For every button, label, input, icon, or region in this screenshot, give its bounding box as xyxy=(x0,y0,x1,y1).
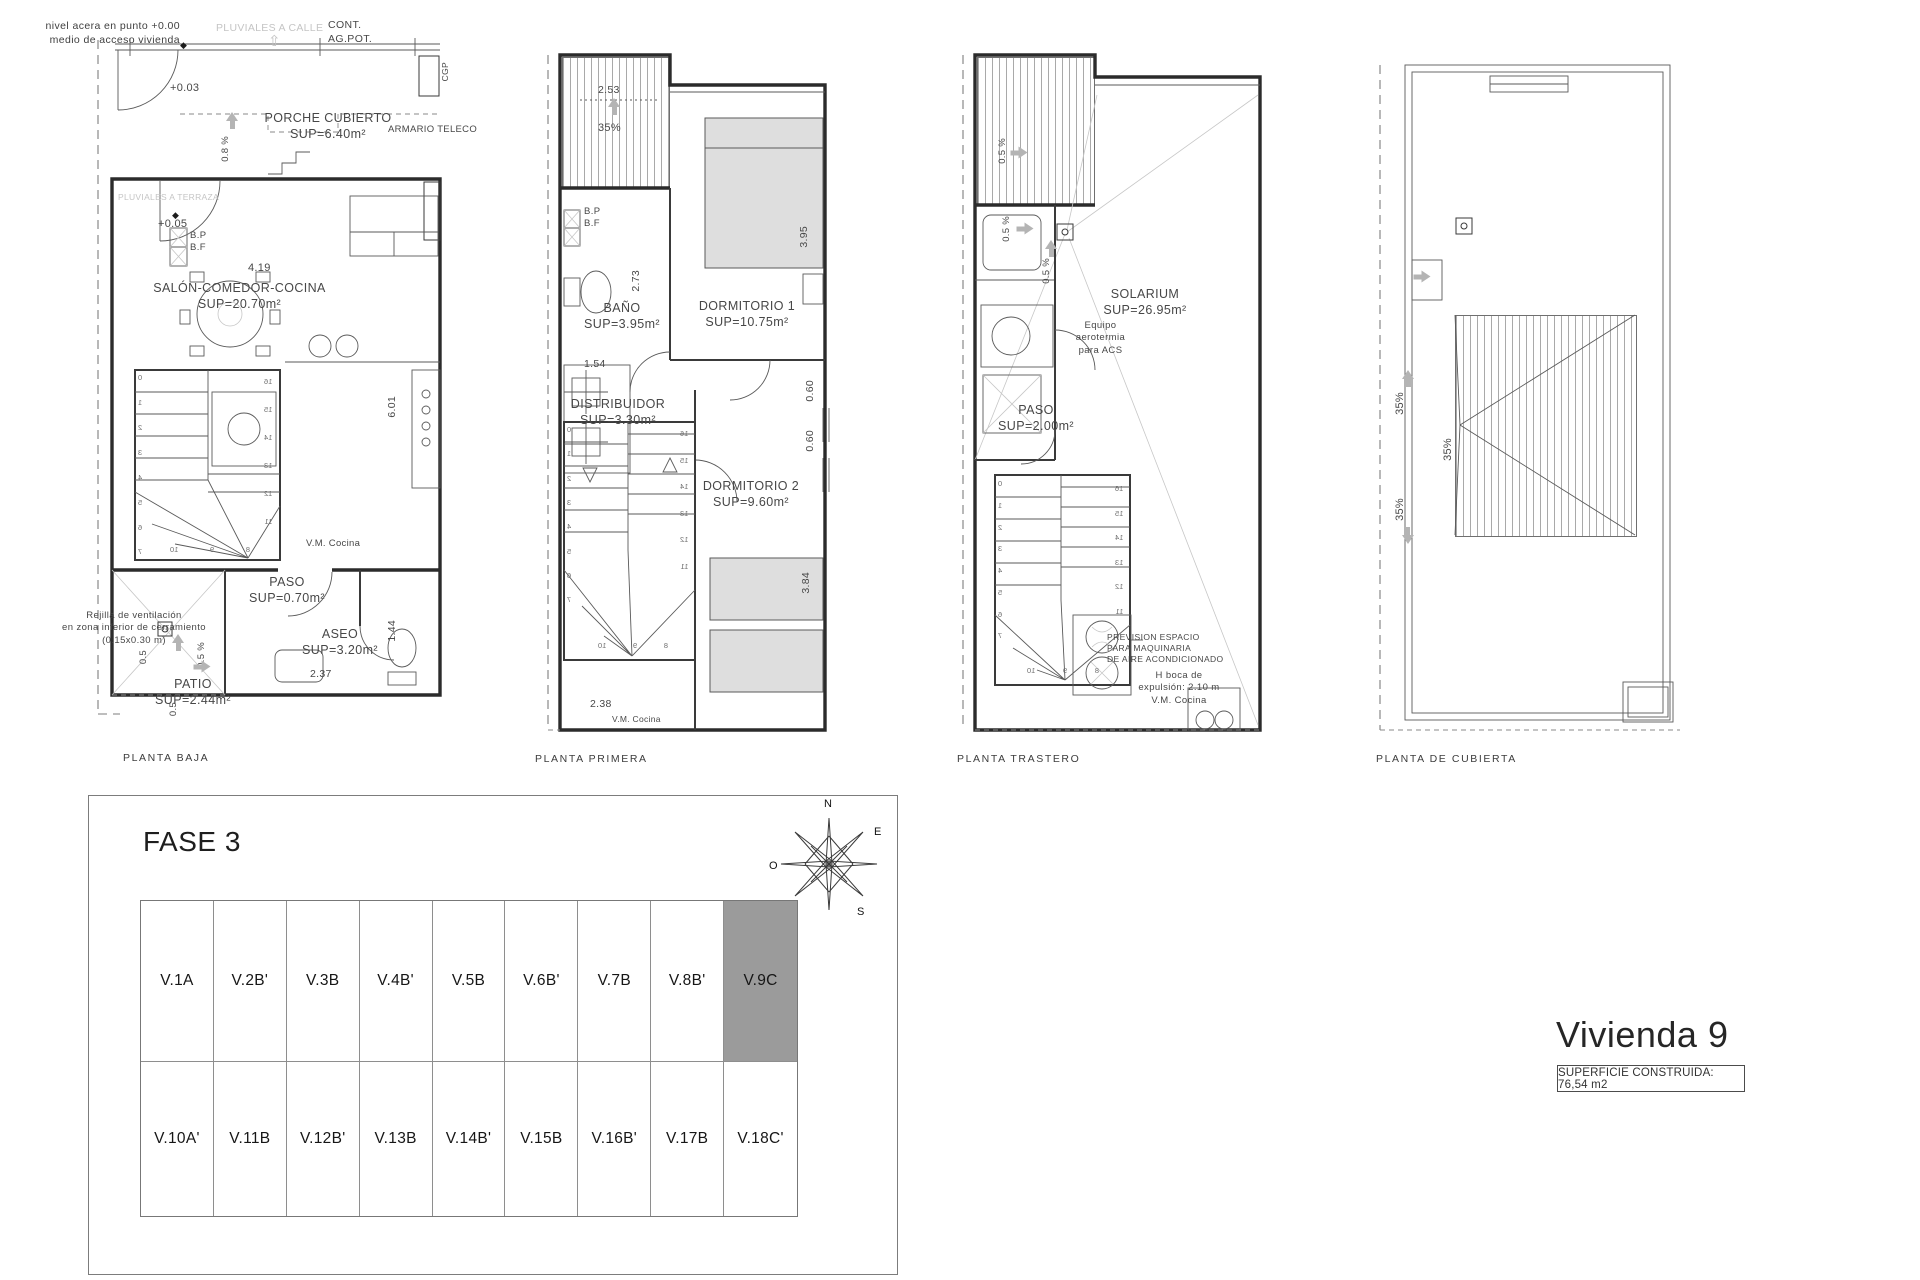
vivienda-title: Vivienda 9 xyxy=(1556,1014,1728,1056)
floorplan-planta-baja: nivel acera en punto +0.00medio de acces… xyxy=(20,14,485,769)
compass-south-label: S xyxy=(857,906,864,918)
dim-1-54: 1.54 xyxy=(584,358,606,370)
unit-cell-v17b: V.17B xyxy=(651,1062,724,1216)
caption-planta-trastero: PLANTA TRASTERO xyxy=(957,753,1080,765)
label-vm-cocina: V.M. Cocina xyxy=(612,714,661,724)
room-aseo: ASEOSUP=3.20m² xyxy=(278,626,402,659)
floorplan-planta-trastero: 0.5 % 0.5 % 0.5 % SOLARIUMSUP=26.95m² Eq… xyxy=(945,30,1275,775)
room-bano: BAÑOSUP=3.95m² xyxy=(562,300,682,333)
room-paso: PASOSUP=2.00m² xyxy=(981,402,1091,435)
slope-arrow-icon xyxy=(1422,271,1431,283)
dim-2-73: 2.73 xyxy=(630,270,642,292)
floorplan-planta-cubierta: 35% 35% 35% PLANTA DE CUBIERTA xyxy=(1360,30,1690,775)
slope-arrow-icon xyxy=(226,112,238,121)
dim-3-95: 3.95 xyxy=(798,226,810,248)
slope-0-5-b: 0.5 % xyxy=(1001,216,1012,242)
unit-cell-v8b: V.8B' xyxy=(651,901,724,1062)
caption-planta-cubierta: PLANTA DE CUBIERTA xyxy=(1376,753,1517,765)
level-0-05: +0.05 xyxy=(158,218,187,230)
dim-2-53: 2.53 xyxy=(598,84,620,96)
slope-0-5-c: 0.5 % xyxy=(1041,258,1052,284)
unit-cell-v4b: V.4B' xyxy=(360,901,433,1062)
unit-cell-v10a: V.10A' xyxy=(141,1062,214,1216)
stair-numbers-left: 01234567 xyxy=(567,426,571,604)
dim-1-44: 1.44 xyxy=(386,620,398,642)
caption-planta-primera: PLANTA PRIMERA xyxy=(535,753,648,765)
unit-cell-v6b: V.6B' xyxy=(505,901,578,1062)
compass-north-label: N xyxy=(824,798,832,810)
unit-cell-v5b: V.5B xyxy=(433,901,506,1062)
note-bp-bf: B.PB.F xyxy=(584,206,601,231)
note-nivel-acera: nivel acera en punto +0.00medio de acces… xyxy=(22,20,180,47)
stair-numbers-right: 161514131211 xyxy=(680,430,688,570)
planta-cubierta-linework xyxy=(1360,30,1690,775)
slope-arrow-icon xyxy=(1019,147,1028,159)
compass-east-label: E xyxy=(874,826,881,838)
pluvial-arrow-icon: ⇧ xyxy=(268,32,281,50)
unit-cell-v16b: V.16B' xyxy=(578,1062,651,1216)
dim-0-60-a: 0.60 xyxy=(804,380,816,402)
room-distribuidor: DISTRIBUIDORSUP=3.30m² xyxy=(552,396,684,429)
dim-3-84: 3.84 xyxy=(800,572,812,594)
unit-cell-v1a: V.1A xyxy=(141,901,214,1062)
unit-grid: V.1A V.2B' V.3B V.4B' V.5B V.6B' V.7B V.… xyxy=(140,900,798,1217)
stair-numbers-bottom: 8910 xyxy=(598,642,668,650)
superficie-construida-box: SUPERFICIE CONSTRUIDA: 76,54 m2 xyxy=(1557,1065,1745,1092)
stair-numbers-left: 01234567 xyxy=(998,480,1002,640)
note-cont-agpot: CONT.AG.POT. xyxy=(328,19,372,46)
slope-0-5-a: 0.5 % xyxy=(997,138,1008,164)
label-cgp: CGP xyxy=(440,62,450,81)
slope-35-c: 35% xyxy=(1394,498,1406,521)
slope-arrow-icon xyxy=(1402,535,1414,544)
unit-cell-v11b: V.11B xyxy=(214,1062,287,1216)
unit-cell-v7b: V.7B xyxy=(578,901,651,1062)
fase-3-key-plan: FASE 3 N E O S V.1A V.2B' V.3B xyxy=(88,795,898,1275)
note-bp-bf: B.PB.F xyxy=(190,230,207,255)
slope-arrow-icon xyxy=(608,98,620,107)
stair-numbers-right: 161514131211 xyxy=(264,378,272,526)
label-pluviales-terraza: PLUVIALES A TERRAZA xyxy=(118,192,219,202)
stair-numbers-right: 161514131211 xyxy=(1115,485,1123,615)
slope-35-b: 35% xyxy=(1442,438,1454,461)
slope-0-5-a: 0.5 xyxy=(138,650,149,664)
room-solarium: SOLARIUMSUP=26.95m² xyxy=(1055,286,1235,319)
slope-arrow-icon xyxy=(172,634,184,643)
fase-title: FASE 3 xyxy=(143,826,241,858)
note-prevision-maquinaria: PREVISION ESPACIOPARA MAQUINARIADE AIRE … xyxy=(1107,632,1259,665)
slope-arrow-icon xyxy=(1402,370,1414,379)
note-boca-expulsion: H boca deexpulsión: 2.10 mV.M. Cocina xyxy=(1103,670,1255,707)
dim-2-37: 2.37 xyxy=(310,668,332,680)
dim-0-60-b: 0.60 xyxy=(804,430,816,452)
label-vm-cocina: V.M. Cocina xyxy=(306,538,360,549)
slope-35-a: 35% xyxy=(1394,392,1406,415)
caption-planta-baja: PLANTA BAJA xyxy=(123,752,209,764)
dim-4-19: 4.19 xyxy=(248,262,271,274)
note-rejilla-ventilacion: Rejilla de ventilaciónen zona inferior d… xyxy=(20,610,248,647)
unit-cell-v12b: V.12B' xyxy=(287,1062,360,1216)
level-0-03: +0.03 xyxy=(170,82,199,94)
room-porche-cubierto: PORCHE CUBIERTOSUP=6.40m² xyxy=(248,110,408,143)
room-salon-comedor-cocina: SALÓN-COMEDOR-COCINASUP=20.70m² xyxy=(132,280,347,313)
unit-cell-v3b: V.3B xyxy=(287,901,360,1062)
room-dormitorio-1: DORMITORIO 1SUP=10.75m² xyxy=(672,298,822,331)
slope-arrow-icon xyxy=(1045,240,1057,249)
compass-west-label: O xyxy=(769,860,778,872)
slope-0-8: 0.8 % xyxy=(220,136,231,162)
superficie-construida-label: SUPERFICIE CONSTRUIDA: 76,54 m2 xyxy=(1558,1067,1744,1091)
unit-cell-v9c-highlighted: V.9C xyxy=(724,901,797,1062)
floorplan-planta-primera: 35% 2.53 B.PB.F 2.73 BAÑOSUP=3.95m² 1.54… xyxy=(520,30,850,775)
room-paso: PASOSUP=0.70m² xyxy=(232,574,342,607)
unit-cell-v18c: V.18C' xyxy=(724,1062,797,1216)
unit-cell-v2b: V.2B' xyxy=(214,901,287,1062)
unit-cell-v14b: V.14B' xyxy=(433,1062,506,1216)
dim-6-01: 6.01 xyxy=(386,396,398,418)
room-patio: PATIOSUP=2.44m² xyxy=(128,676,258,709)
slope-arrow-icon xyxy=(1025,223,1034,235)
slope-arrow-icon xyxy=(202,661,211,673)
stair-numbers-bottom: 8910 xyxy=(1027,667,1099,675)
stair-numbers-left: 01234567 xyxy=(138,374,142,556)
stair-numbers-bottom: 8910 xyxy=(170,546,250,554)
note-equipo-aerotermia: Equipoaerotermiapara ACS xyxy=(1043,320,1158,357)
label-armario-teleco: ARMARIO TELECO xyxy=(388,124,477,135)
unit-cell-v15b: V.15B xyxy=(505,1062,578,1216)
slope-35: 35% xyxy=(598,122,621,134)
dim-2-38: 2.38 xyxy=(590,698,612,710)
level-marker-icon: ◆ xyxy=(180,40,187,51)
room-dormitorio-2: DORMITORIO 2SUP=9.60m² xyxy=(678,478,824,511)
unit-cell-v13b: V.13B xyxy=(360,1062,433,1216)
